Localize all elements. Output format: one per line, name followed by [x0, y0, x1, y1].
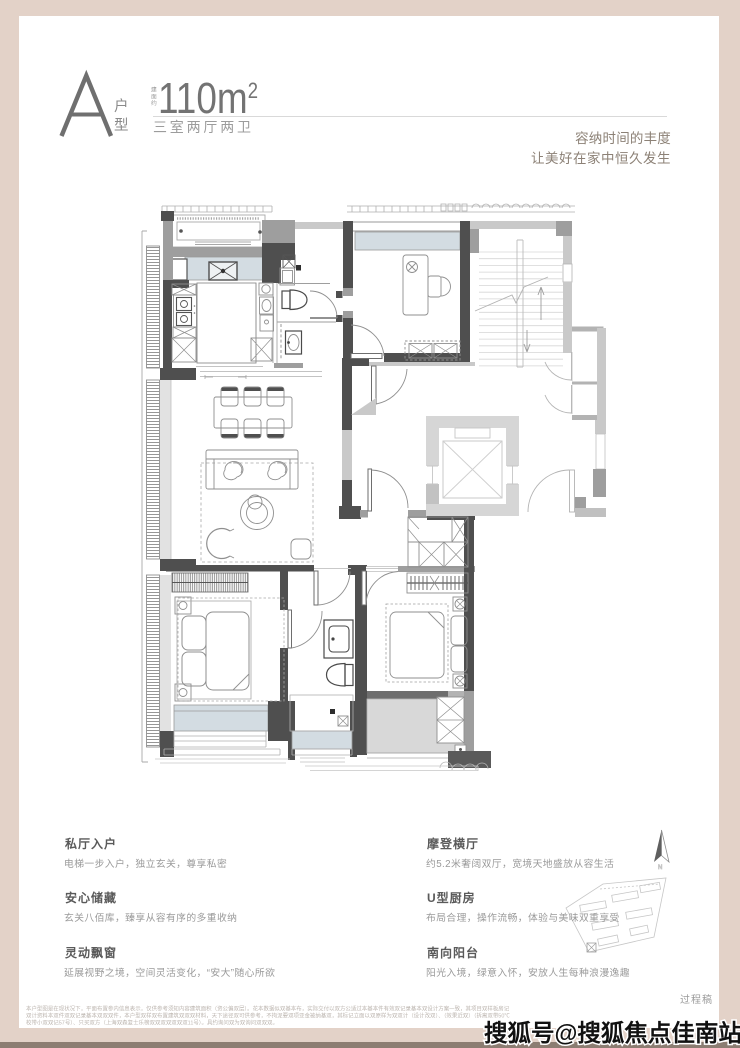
svg-text:N: N	[658, 865, 662, 871]
svg-text:搜狐号@搜狐焦点佳南站: 搜狐号@搜狐焦点佳南站	[484, 1019, 740, 1046]
